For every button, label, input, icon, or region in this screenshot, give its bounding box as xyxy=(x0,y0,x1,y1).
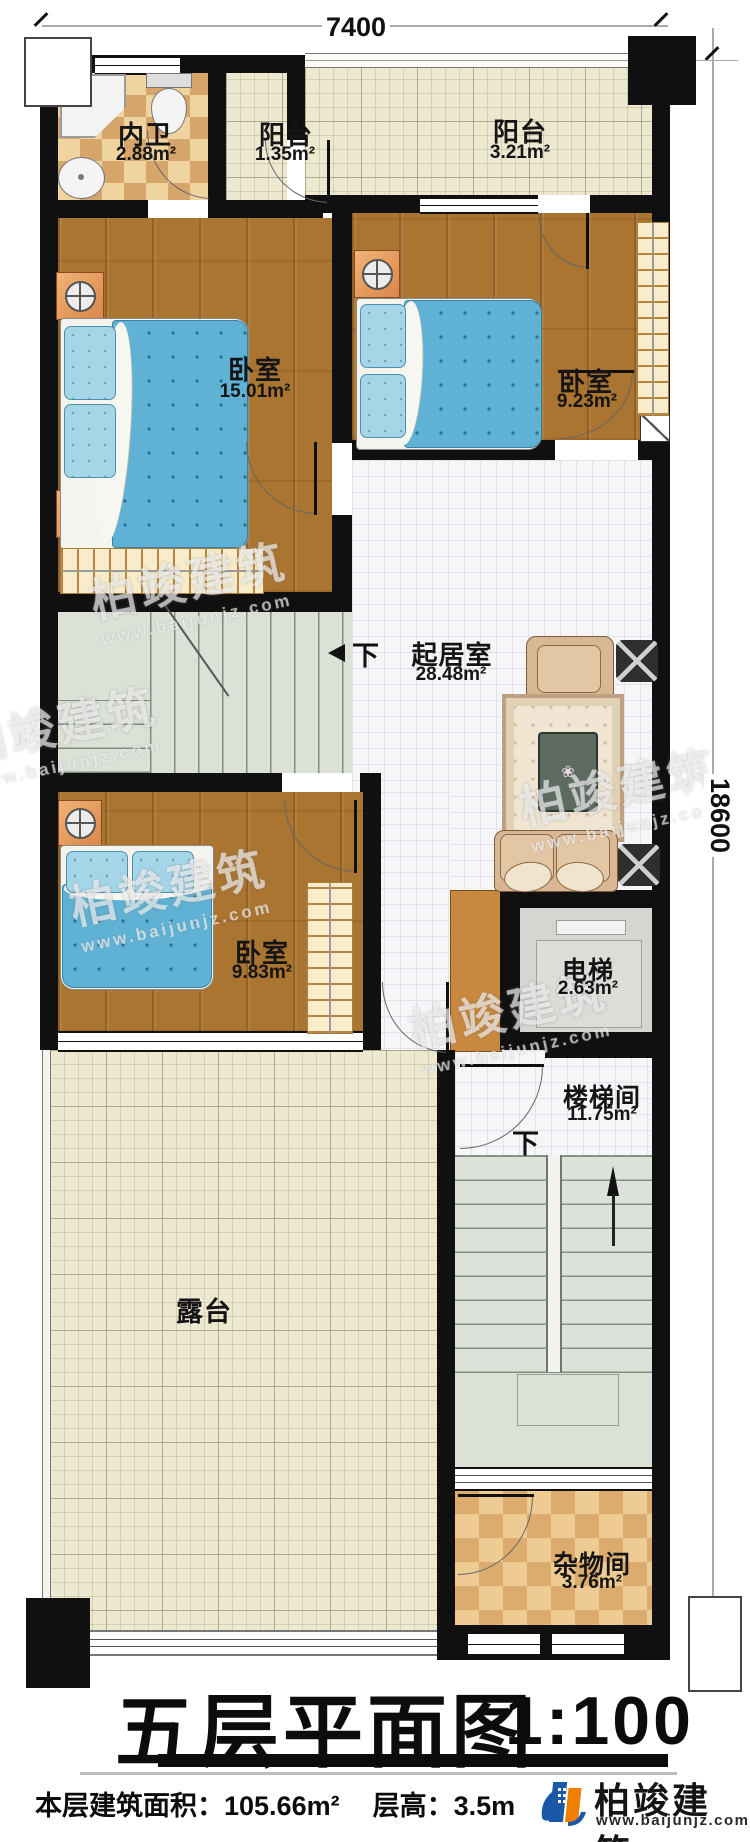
side-table-top xyxy=(616,640,658,682)
elevator-door-panel xyxy=(450,890,502,1052)
stair-up-arrow-stem xyxy=(612,1194,615,1246)
pillow xyxy=(132,851,194,893)
bed-right-blanket xyxy=(404,300,542,448)
wall-bedroom-lower-top-left xyxy=(40,773,282,792)
footer-height: 层高：3.5m xyxy=(373,1791,516,1821)
nightstand xyxy=(58,800,102,846)
room-area-bedroom-lower: 9.83m² xyxy=(202,962,322,984)
room-area-balcony-small: 1.35m² xyxy=(235,144,335,166)
logo-name: 柏竣建筑 xyxy=(594,1772,738,1842)
column-marker-bottom-right xyxy=(688,1596,742,1692)
stairwell-down-label: 下 xyxy=(512,1122,539,1161)
logo-building-icon xyxy=(538,1774,590,1830)
wall-bathroom-bottom-left xyxy=(40,200,148,218)
wall-bedroom-right-top-right xyxy=(590,195,652,213)
room-area-storage: 3.76m² xyxy=(537,1572,647,1594)
storage-door-leaf xyxy=(458,1494,534,1497)
dimension-width: 7400 xyxy=(322,12,390,43)
title-underline xyxy=(158,1754,668,1767)
wardrobe-right xyxy=(637,222,669,416)
wardrobe-master xyxy=(60,548,264,594)
room-area-bedroom-right: 9.23m² xyxy=(537,391,637,413)
wall-bedroom-lower-right xyxy=(363,792,381,1032)
nightstand xyxy=(354,250,400,298)
bedroom-lower-window xyxy=(58,1031,363,1052)
terrace-railing-left xyxy=(42,1050,51,1650)
column-marker-top-left xyxy=(24,37,92,107)
room-area-bathroom: 2.88m² xyxy=(96,144,196,166)
coffee-table: ❀ xyxy=(538,732,598,812)
sink-drain-icon xyxy=(78,174,84,180)
mid-stair-landing-lines xyxy=(58,700,150,773)
room-area-living: 28.48m² xyxy=(391,664,511,686)
bedroom-right-window xyxy=(420,197,538,214)
room-area-stairwell: 11.75m² xyxy=(547,1104,657,1126)
stairwell-door-leaf xyxy=(460,1064,544,1067)
elevator-wall-left xyxy=(500,908,520,1032)
room-label-terrace: 露台 xyxy=(154,1290,254,1329)
stair-down-label: 下 xyxy=(352,634,379,673)
stair-down-arrow-icon xyxy=(328,644,345,662)
lamp-icon xyxy=(65,281,96,312)
logo-website: www.baijunjz.com xyxy=(596,1812,749,1829)
footer-area: 本层建筑面积：105.66m² xyxy=(35,1791,340,1821)
room-area-bedroom-master: 15.01m² xyxy=(195,381,315,403)
lamp-icon xyxy=(362,259,393,290)
terrace-floor xyxy=(50,1050,437,1650)
stair-up-arrow-icon xyxy=(607,1166,619,1196)
logo: 柏竣建筑 www.baijunjz.com xyxy=(538,1772,738,1832)
room-area-elevator: 2.63m² xyxy=(538,978,638,1000)
side-table-bottom xyxy=(618,844,660,886)
armchair-cushion xyxy=(537,645,601,693)
pillow xyxy=(360,374,406,438)
ac-unit xyxy=(640,413,670,442)
balcony-large-railing xyxy=(305,53,628,68)
wall-stub-corridor xyxy=(363,1032,381,1050)
column-bottom-left xyxy=(26,1598,90,1688)
column-top-right xyxy=(628,36,696,105)
landing-window xyxy=(455,1467,652,1491)
stair-rail xyxy=(546,1155,562,1372)
balcony-large-door-leaf xyxy=(586,213,589,269)
bedroom-lower-door-leaf xyxy=(354,800,357,873)
nightstand xyxy=(56,272,104,320)
toilet-tank-icon xyxy=(146,73,192,88)
bathroom-door-leaf xyxy=(209,130,212,200)
wall-stairwell-top xyxy=(545,1042,652,1058)
mid-stair-treads xyxy=(150,612,352,773)
lamp-icon xyxy=(65,808,96,839)
floor-plan-page: ❀ 下 下 内卫 2.88m² 阳台 1.35m² 阳台 3.21m² 卧室 1… xyxy=(0,0,750,1842)
wall-bedrooms-divider-upper xyxy=(332,195,352,443)
wall-bedroom-master-bottom xyxy=(40,592,352,612)
landing-outline xyxy=(517,1374,619,1426)
footer-info: 本层建筑面积：105.66m² 层高：3.5m xyxy=(35,1784,515,1823)
scale-label: 1:100 xyxy=(505,1682,694,1760)
wall-stairwell-left xyxy=(437,1050,455,1660)
wall-stub-right xyxy=(638,440,652,460)
terrace-railing-bottom xyxy=(42,1630,437,1656)
pillow xyxy=(360,304,406,368)
wall-bedroom-lower-top-right xyxy=(360,773,381,792)
extension-line xyxy=(696,60,738,61)
room-area-balcony-large: 3.21m² xyxy=(469,142,571,164)
elevator-wall-top xyxy=(500,890,652,908)
storage-window-right xyxy=(552,1632,624,1656)
bedroom-master-door-leaf xyxy=(314,442,317,515)
dimension-height: 18600 xyxy=(704,774,735,857)
terrace-door-leaf xyxy=(446,982,449,1054)
elevator-door-slot xyxy=(556,920,626,935)
pillow xyxy=(64,404,116,478)
storage-window-left xyxy=(468,1632,540,1656)
pillow xyxy=(64,326,116,400)
pillow xyxy=(66,851,128,893)
